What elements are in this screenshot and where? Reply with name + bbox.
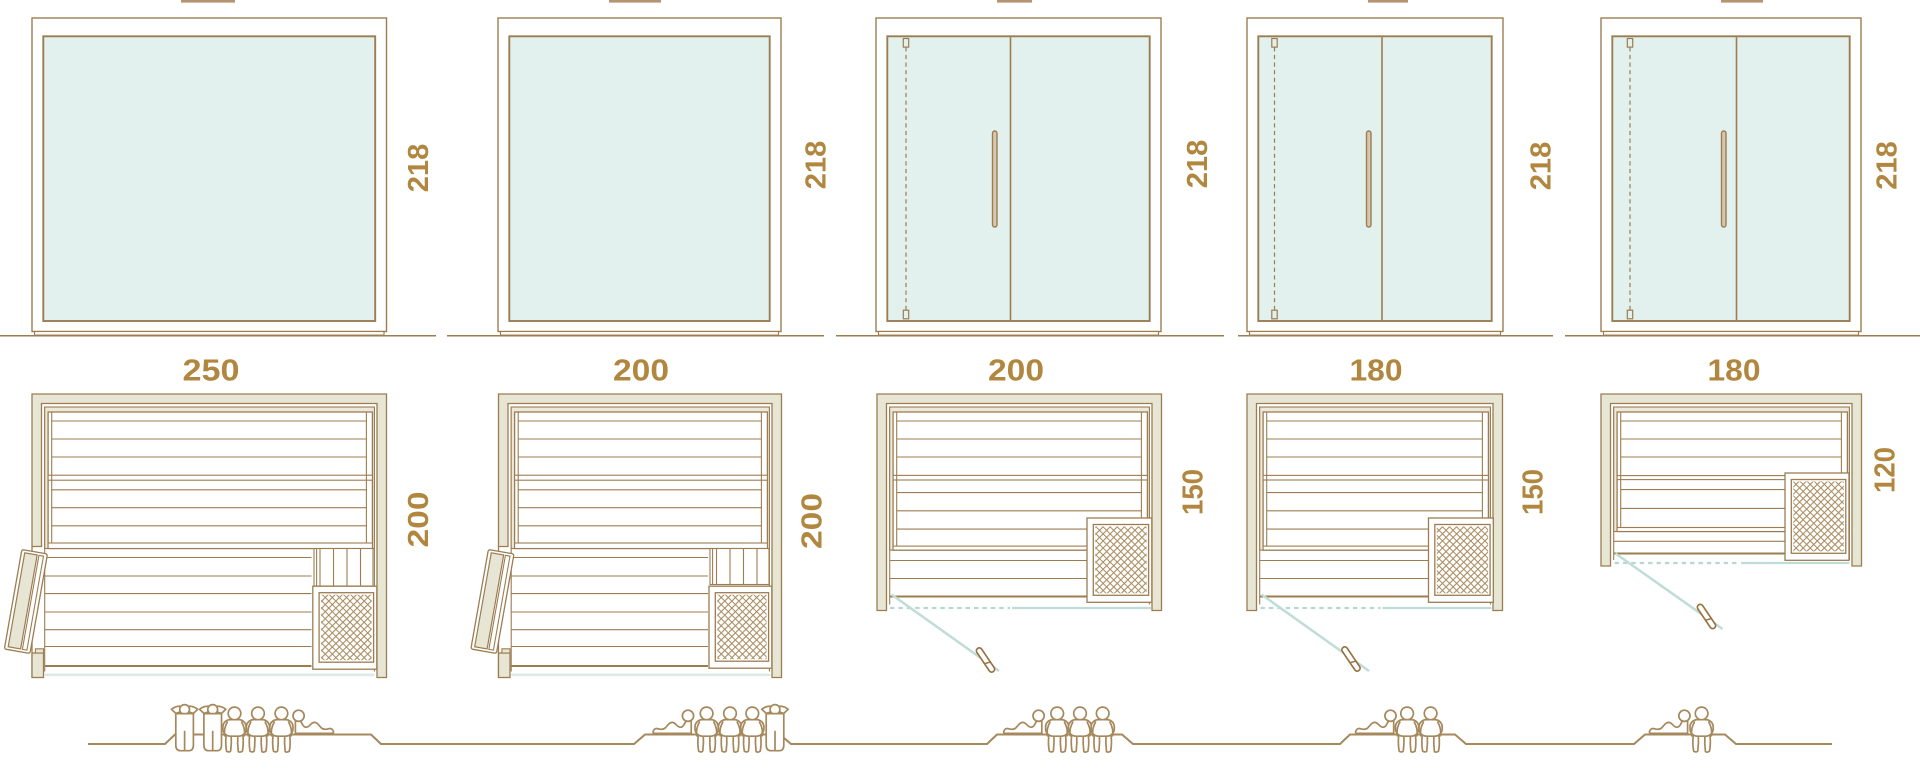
svg-text:250: 250: [183, 353, 240, 388]
svg-text:218: 218: [1182, 140, 1214, 189]
svg-text:218: 218: [1872, 141, 1904, 190]
svg-text:200: 200: [403, 492, 435, 548]
svg-text:200: 200: [797, 493, 829, 549]
svg-text:180: 180: [1708, 353, 1761, 388]
svg-text:120: 120: [1870, 447, 1902, 493]
svg-text:200: 200: [988, 353, 1044, 388]
svg-text:200: 200: [613, 353, 669, 388]
svg-text:218: 218: [1526, 142, 1558, 191]
svg-text:218: 218: [801, 141, 833, 190]
svg-text:218: 218: [403, 144, 435, 193]
svg-text:180: 180: [1350, 353, 1403, 388]
svg-text:150: 150: [1518, 469, 1550, 515]
svg-text:150: 150: [1178, 469, 1210, 515]
